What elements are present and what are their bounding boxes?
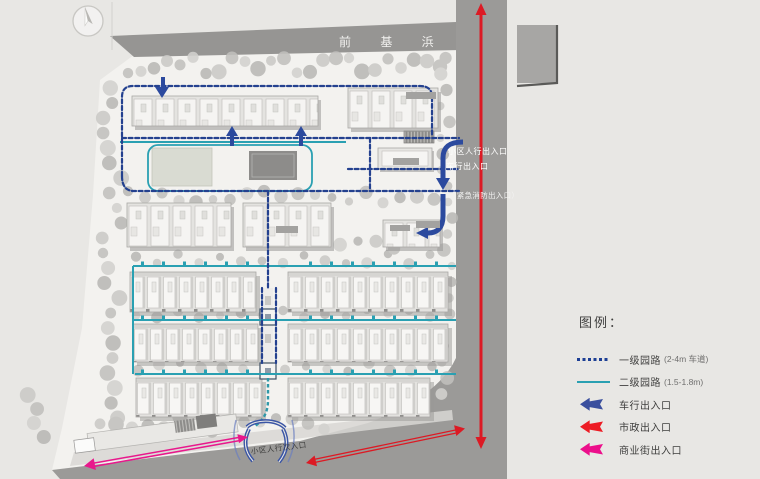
pink-arrow-icon — [580, 443, 603, 456]
legend-title: 图例： — [579, 312, 757, 331]
legend-item-vehicle-entrance: 车行出入口 — [577, 393, 757, 416]
riverside-building — [517, 25, 557, 86]
townhouse-block — [136, 378, 266, 421]
site-plan-page: 前 基 浜 小区人行出入口 车行出入口 （紧急消防出入口） 小区人行次入口 图例… — [0, 0, 760, 479]
legend-item-secondary-path: 二级园路 (1.5-1.8m) — [577, 371, 757, 394]
townhouse-block — [288, 378, 434, 421]
legend-item-primary-path: 一级园路 (2-4m 车道) — [577, 348, 757, 371]
vehicle-entrance-label: 车行出入口 — [446, 161, 489, 172]
red-arrow-icon — [580, 420, 603, 433]
legend-item-commercial-entrance: 商业街出入口 — [577, 438, 757, 461]
emergency-entrance-label: （紧急消防出入口） — [449, 190, 519, 201]
boulevard-node — [260, 363, 276, 379]
townhouse-blocks — [130, 272, 452, 421]
river-label: 前 基 浜 — [339, 33, 447, 50]
blue-arrow-icon — [580, 398, 603, 411]
legend: 图例： 一级园路 (2-4m 车道) 二级园路 (1.5-1.8m) 车行出入口… — [577, 312, 757, 461]
townhouse-block — [288, 272, 452, 316]
building — [132, 96, 321, 130]
townhouse-block — [130, 272, 260, 316]
building — [127, 203, 234, 251]
solid-line-swatch — [577, 381, 610, 384]
dashed-line-swatch — [577, 358, 610, 361]
central-plaza — [249, 151, 297, 180]
north-arrow-icon — [73, 2, 112, 50]
green-courtyard — [152, 148, 212, 186]
legend-item-municipal-entrance: 市政出入口 — [577, 416, 757, 439]
townhouse-block — [288, 324, 452, 366]
townhouse-block — [133, 324, 262, 366]
pedestrian-main-entrance-label: 小区人行出入口 — [448, 146, 508, 157]
